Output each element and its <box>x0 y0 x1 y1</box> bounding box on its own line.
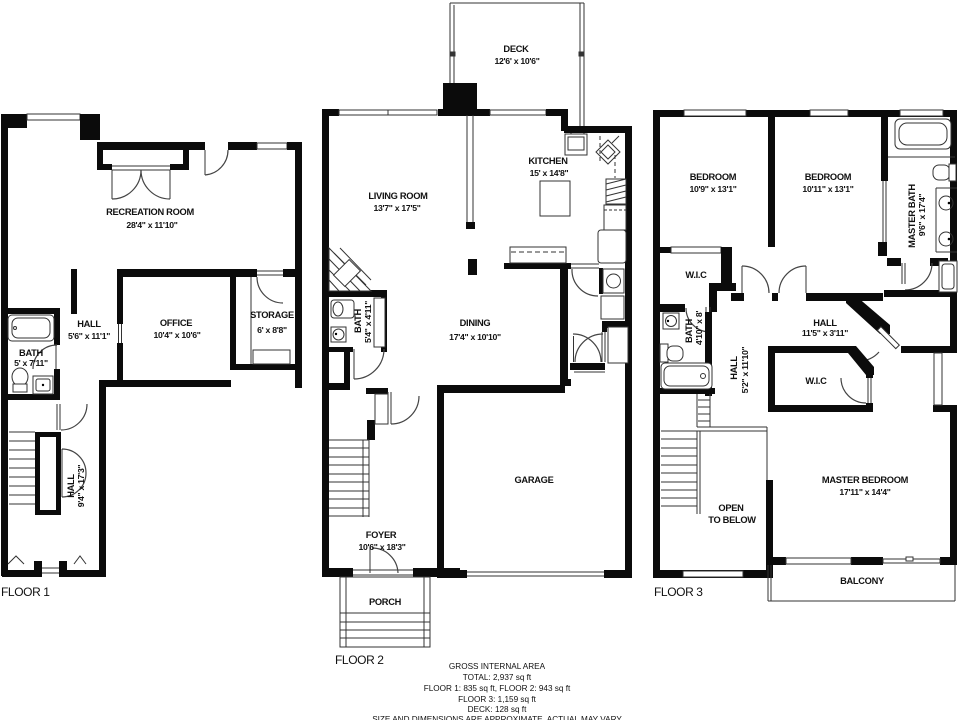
svg-text:HALL: HALL <box>77 319 101 329</box>
svg-text:OFFICE: OFFICE <box>160 318 192 328</box>
svg-text:DECK: 128 sq ft: DECK: 128 sq ft <box>468 705 527 714</box>
svg-text:TOTAL: 2,937 sq ft: TOTAL: 2,937 sq ft <box>463 673 532 682</box>
svg-text:FLOOR 3: FLOOR 3 <box>654 585 703 599</box>
svg-text:FLOOR 1: 835 sq ft, FLOOR 2: 9: FLOOR 1: 835 sq ft, FLOOR 2: 943 sq ft <box>424 684 571 693</box>
svg-text:DINING: DINING <box>460 318 491 328</box>
svg-text:11'5" x 3'11": 11'5" x 3'11" <box>802 328 848 338</box>
svg-text:FOYER: FOYER <box>366 530 397 540</box>
svg-text:KITCHEN: KITCHEN <box>528 156 568 166</box>
svg-text:FLOOR 3: 1,159 sq ft: FLOOR 3: 1,159 sq ft <box>458 695 537 704</box>
svg-text:RECREATION ROOM: RECREATION ROOM <box>106 207 194 217</box>
svg-text:BATH: BATH <box>19 348 44 358</box>
svg-text:10'9" x 13'1": 10'9" x 13'1" <box>689 184 736 194</box>
svg-text:9'6" x 17'4": 9'6" x 17'4" <box>917 194 927 237</box>
svg-text:HALL: HALL <box>66 474 76 498</box>
svg-text:5'2" x 11'10": 5'2" x 11'10" <box>740 347 750 394</box>
svg-text:GROSS INTERNAL AREA: GROSS INTERNAL AREA <box>449 662 546 671</box>
svg-text:6' x 8'8": 6' x 8'8" <box>257 325 287 335</box>
svg-text:GARAGE: GARAGE <box>514 475 553 485</box>
svg-text:PORCH: PORCH <box>369 597 402 607</box>
svg-text:28'4" x 11'10": 28'4" x 11'10" <box>126 220 177 230</box>
svg-text:MASTER BEDROOM: MASTER BEDROOM <box>822 475 909 485</box>
svg-text:17'4" x 10'10": 17'4" x 10'10" <box>449 332 501 342</box>
svg-text:TO BELOW: TO BELOW <box>708 515 756 525</box>
svg-text:BATH: BATH <box>684 318 694 343</box>
svg-text:HALL: HALL <box>729 356 739 380</box>
svg-text:15' x 14'8": 15' x 14'8" <box>530 168 569 178</box>
svg-text:HALL: HALL <box>813 318 837 328</box>
svg-text:13'7" x 17'5": 13'7" x 17'5" <box>373 203 420 213</box>
svg-text:BEDROOM: BEDROOM <box>805 172 852 182</box>
svg-text:BEDROOM: BEDROOM <box>690 172 737 182</box>
svg-text:10'11" x 13'1": 10'11" x 13'1" <box>802 184 853 194</box>
svg-text:FLOOR 1: FLOOR 1 <box>1 585 50 599</box>
svg-text:BALCONY: BALCONY <box>840 576 885 586</box>
svg-text:5'6" x 11'1": 5'6" x 11'1" <box>68 331 110 341</box>
svg-text:MASTER BATH: MASTER BATH <box>907 184 917 248</box>
svg-text:W.I.C: W.I.C <box>805 376 827 386</box>
svg-text:10'4" x 10'6": 10'4" x 10'6" <box>153 330 200 340</box>
svg-text:17'11" x 14'4": 17'11" x 14'4" <box>839 487 890 497</box>
svg-text:12'6' x 10'6": 12'6' x 10'6" <box>494 56 539 66</box>
svg-text:5'4" x 4'11": 5'4" x 4'11" <box>363 301 373 343</box>
svg-text:FLOOR 2: FLOOR 2 <box>335 653 384 667</box>
svg-text:OPEN: OPEN <box>718 503 744 513</box>
svg-text:4'10" x 8': 4'10" x 8' <box>694 311 704 345</box>
svg-text:BATH: BATH <box>353 308 363 333</box>
svg-text:9'4" x 17'3": 9'4" x 17'3" <box>76 465 86 508</box>
svg-text:5' x 7'11": 5' x 7'11" <box>14 358 48 368</box>
svg-text:STORAGE: STORAGE <box>250 310 294 320</box>
svg-text:DECK: DECK <box>503 44 529 54</box>
svg-text:10'6" x 18'3": 10'6" x 18'3" <box>358 542 405 552</box>
svg-text:LIVING ROOM: LIVING ROOM <box>368 191 428 201</box>
svg-text:W.I.C: W.I.C <box>685 270 707 280</box>
svg-text:SIZE AND DIMENSIONS ARE APPROX: SIZE AND DIMENSIONS ARE APPROXIMATE, ACT… <box>372 715 622 720</box>
